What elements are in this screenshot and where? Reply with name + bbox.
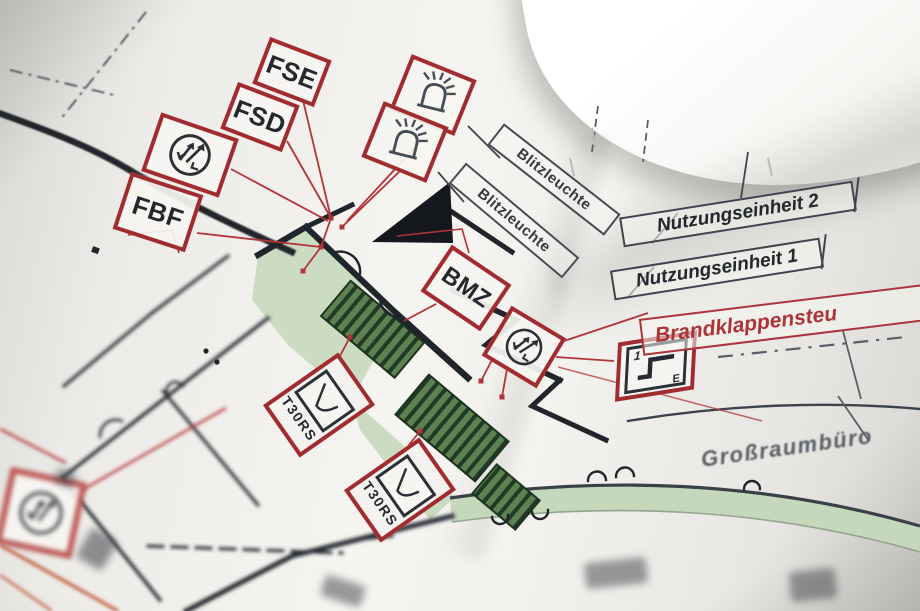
strobe-beacon-icon <box>376 113 434 171</box>
damper-digit: 1 <box>634 348 641 363</box>
motor-arrows-icon <box>494 317 554 377</box>
motor-arrows-icon <box>158 123 222 187</box>
photographed-fire-protection-plan: FSE FSD FBF Blitzleuchte <box>0 0 920 611</box>
motor-arrows-icon <box>10 482 72 544</box>
damper-letter: E <box>672 372 680 385</box>
fsd-label: FSD <box>229 93 290 141</box>
bmz-label: BMZ <box>436 261 496 314</box>
fbf-label: FBF <box>128 189 187 235</box>
fse-label: FSE <box>262 48 322 96</box>
blurred-numeral-smudge <box>789 568 838 603</box>
